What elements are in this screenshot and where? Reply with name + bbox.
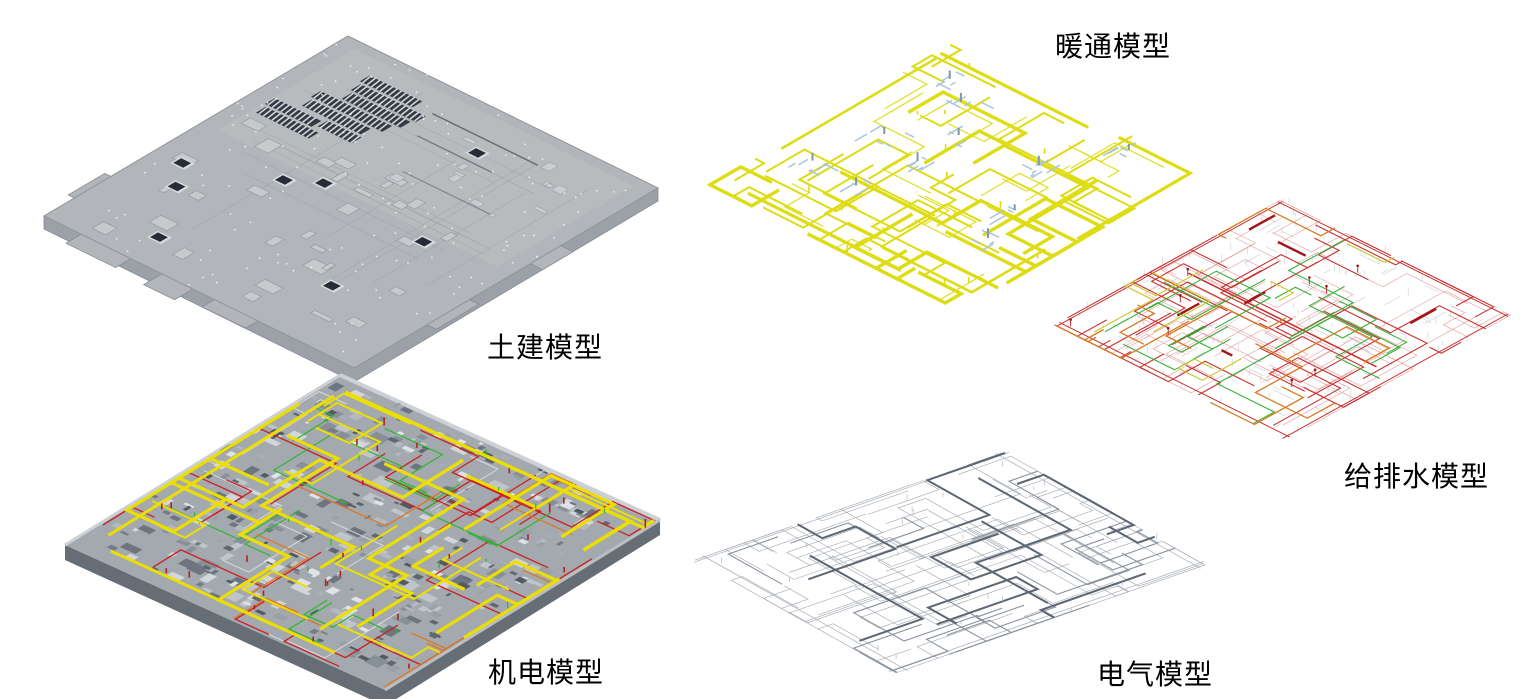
label-hvac-model: 暖通模型 [1055, 31, 1171, 63]
mep-model-render [65, 375, 660, 699]
label-civil-model: 土建模型 [487, 332, 603, 364]
label-plumbing-model: 给排水模型 [1344, 461, 1489, 493]
plumbing-model-render [1055, 198, 1511, 439]
models-scene [0, 0, 1533, 699]
label-mep-model: 机电模型 [488, 657, 604, 689]
label-electrical-model: 电气模型 [1097, 659, 1213, 691]
civil-model-render [44, 36, 658, 382]
bim-models-figure: 土建模型 机电模型 暖通模型 给排水模型 电气模型 [0, 0, 1533, 699]
hvac-model-render [710, 45, 1190, 303]
electrical-model-render [694, 452, 1205, 673]
